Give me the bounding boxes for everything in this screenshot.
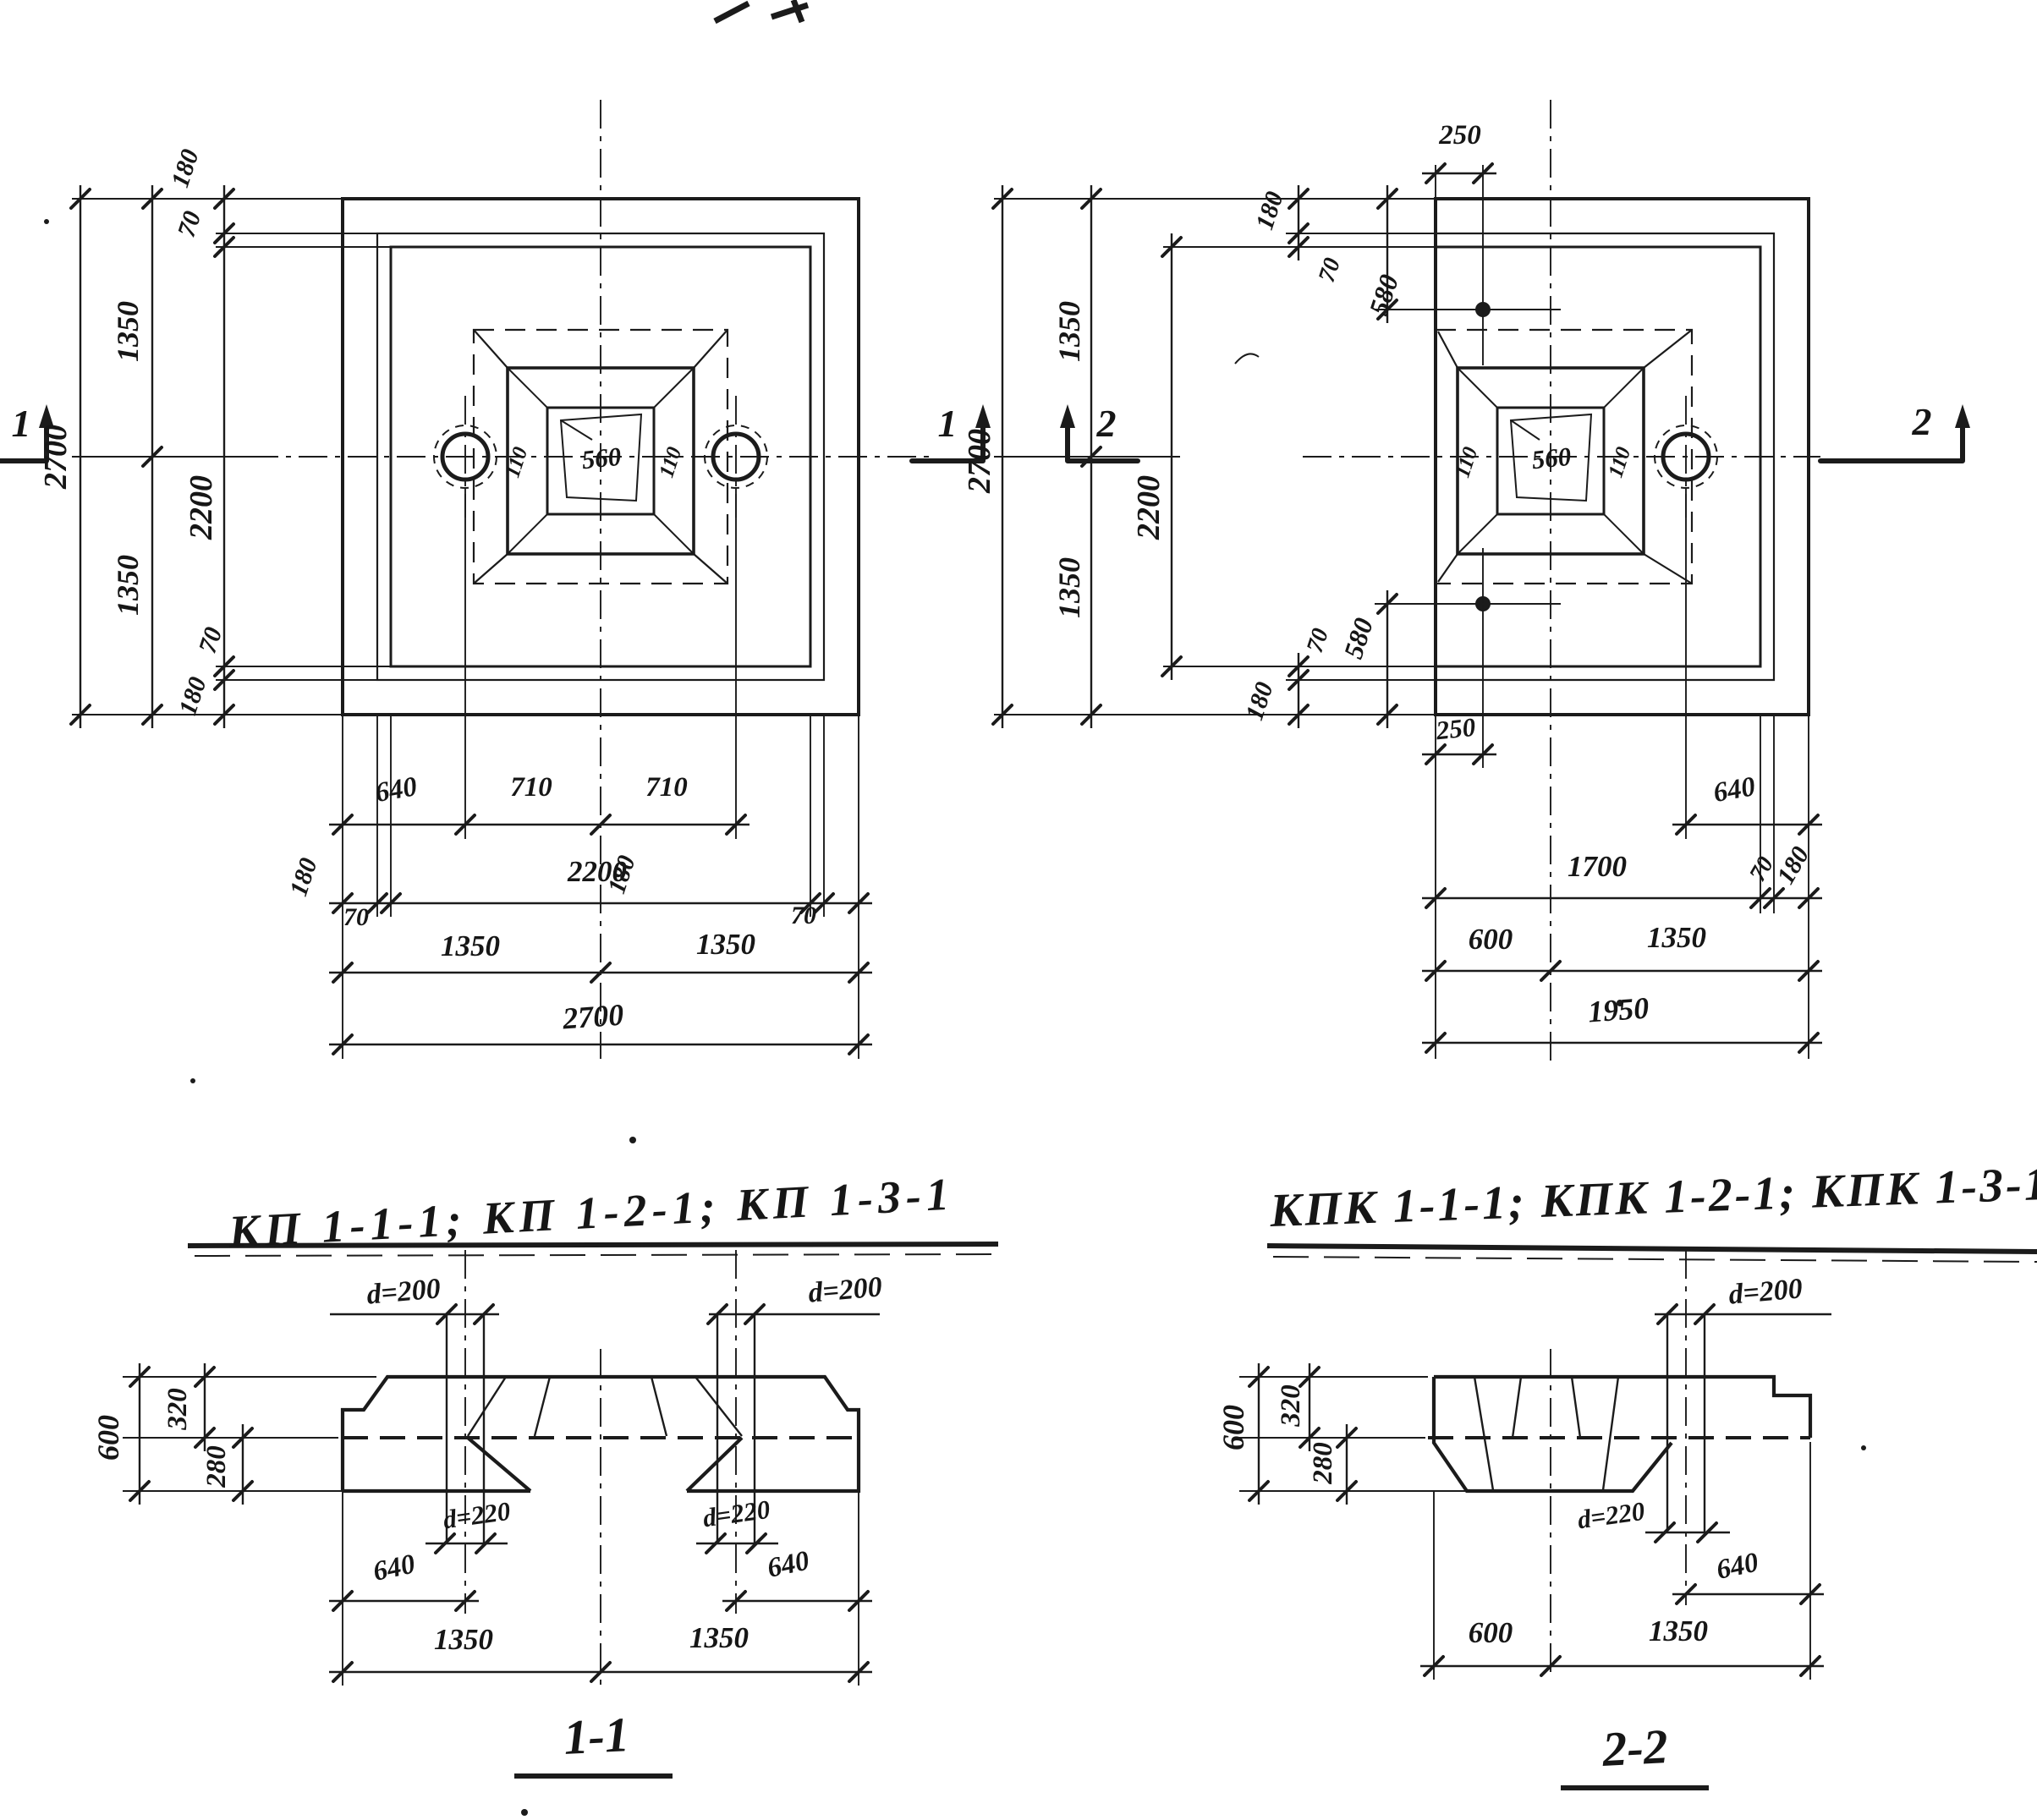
pl-dim-70-row2-left: 70 <box>343 903 369 931</box>
title-left-underline-2 <box>195 1254 994 1256</box>
pr-marker-2-right-label: 2 <box>1912 400 1932 443</box>
cut-2-right-stem <box>1820 416 1963 461</box>
pl-marker-1-right-label: 1 <box>938 402 958 445</box>
s1-dim-320: 320 <box>162 1388 193 1431</box>
s2-dim-280: 280 <box>1308 1442 1338 1485</box>
cut-1-right-arrowhead <box>975 404 991 428</box>
s1-dim-1350-left: 1350 <box>434 1623 493 1656</box>
s1-d200-left: d=200 <box>365 1273 442 1310</box>
scan-dot <box>190 1078 195 1083</box>
s1-d200-right: d=200 <box>807 1271 883 1308</box>
scan-dot <box>521 1809 528 1816</box>
pr-dim-70-topleft: 70 <box>1314 255 1346 285</box>
dimension-linework <box>71 100 1831 1686</box>
pl-marker-1-left-label: 1 <box>12 402 31 445</box>
pl-dim-70-bottomleft: 70 <box>194 624 228 657</box>
pl-dim-710-left: 710 <box>510 772 552 803</box>
pl-dim-710-right: 710 <box>645 772 688 803</box>
pr-dim-580-bottom: 580 <box>1337 614 1379 662</box>
pr-dim-1350-bottom: 1350 <box>1052 557 1086 618</box>
pr-dim-1950: 1950 <box>1587 991 1650 1029</box>
pr-dim-640: 640 <box>1711 771 1758 809</box>
pl-dim-2200-left: 2200 <box>184 475 219 540</box>
pr-dim-70-bottomleft: 70 <box>1302 625 1334 655</box>
pl-dim-2700-bottom: 2700 <box>561 998 625 1036</box>
pl-dim-180-row2-left: 180 <box>284 855 322 900</box>
s2-cup-wall-lines <box>1474 1377 1618 1490</box>
scan-squiggle <box>1235 354 1259 364</box>
title-right-underline-2 <box>1273 1257 2037 1262</box>
pl-dim-70-topleft: 70 <box>173 208 207 241</box>
drawing-canvas: 2700135013502200180707018011110560110640… <box>0 0 2037 1820</box>
s2-dim-1350-bottom: 1350 <box>1649 1614 1708 1647</box>
scan-dot <box>44 219 49 224</box>
pr-dim-600: 600 <box>1469 923 1513 956</box>
pl-dim-180-bottomleft: 180 <box>173 674 211 719</box>
s1-dim-1350-right: 1350 <box>689 1621 749 1654</box>
s2-dim-600: 600 <box>1216 1405 1250 1450</box>
s2-dim-600-bottom: 600 <box>1469 1616 1513 1649</box>
pr-cup-110-left: 110 <box>1451 444 1482 480</box>
pl-dim-70-row2-right: 70 <box>791 902 816 929</box>
s1-section-label: 1-1 <box>563 1707 631 1765</box>
pr-dim-1350-top: 1350 <box>1052 301 1086 362</box>
s1-dim-600: 600 <box>91 1415 125 1461</box>
pl-cup-110-left: 110 <box>501 444 532 480</box>
scan-mark-top <box>715 0 808 22</box>
s1-dim-280: 280 <box>201 1445 232 1488</box>
s1-d220-left: d=220 <box>442 1496 513 1535</box>
pl-dim-1350-bottom: 1350 <box>111 555 145 616</box>
scan-specks <box>44 0 1866 1816</box>
title-right: КПК 1-1-1; КПК 1-2-1; КПК 1-3-1 <box>1268 1158 2037 1237</box>
pr-dim-250-bottom: 250 <box>1434 712 1477 746</box>
pr-cup-560: 560 <box>1530 441 1573 475</box>
s2-section-label: 2-2 <box>1600 1719 1670 1777</box>
pr-cup-110-right: 110 <box>1604 444 1635 480</box>
scan-dot <box>1861 1445 1866 1450</box>
pr-marker-2-left-label: 2 <box>1096 402 1117 445</box>
pl-dim-180-topleft: 180 <box>166 146 204 191</box>
plan-right-foundation <box>1379 199 1809 715</box>
pl-dim-2700-left: 2700 <box>38 425 74 490</box>
cut-2-left-arrowhead <box>1060 404 1075 428</box>
s1-dim-640-right: 640 <box>765 1545 812 1584</box>
pl-dim-1350-bot-right: 1350 <box>696 928 755 961</box>
pr-dim-1700: 1700 <box>1568 850 1627 883</box>
pl-dim-640: 640 <box>373 771 420 809</box>
pl-dim-1350-top: 1350 <box>111 301 145 362</box>
s1-cup-wall-lines <box>468 1377 742 1436</box>
pr-dim-1350-row: 1350 <box>1647 921 1706 954</box>
pr-dim-2200-left: 2200 <box>1131 475 1167 540</box>
s2-dim-640: 640 <box>1714 1547 1761 1586</box>
s2-d220: d=220 <box>1576 1496 1647 1535</box>
s2-dim-320: 320 <box>1276 1384 1306 1428</box>
pr-dim-580-top: 580 <box>1363 271 1404 319</box>
dimension-labels: 2700135013502200180707018011110560110640… <box>12 120 2037 1777</box>
s1-d220-right: d=220 <box>701 1494 772 1533</box>
cut-1-left-arrowhead <box>39 404 54 428</box>
s2-d200: d=200 <box>1727 1273 1804 1310</box>
pl-dim-1350-bot-left: 1350 <box>441 929 500 962</box>
pr-dim-180-bottomleft: 180 <box>1240 679 1278 724</box>
title-right-underline <box>1267 1246 2037 1252</box>
pl-cup-110-right: 110 <box>655 444 686 480</box>
cut-2-right-arrowhead <box>1955 404 1970 428</box>
pr-dim-2700-left: 2700 <box>962 429 997 494</box>
pr-dim-250-top: 250 <box>1438 120 1481 151</box>
pr-dim-180-topleft: 180 <box>1250 189 1288 233</box>
drawing-sheet: 2700135013502200180707018011110560110640… <box>0 0 2037 1820</box>
s1-dim-640-left: 640 <box>371 1549 418 1587</box>
pl-cup-560: 560 <box>580 441 623 475</box>
scan-dot <box>629 1137 636 1143</box>
